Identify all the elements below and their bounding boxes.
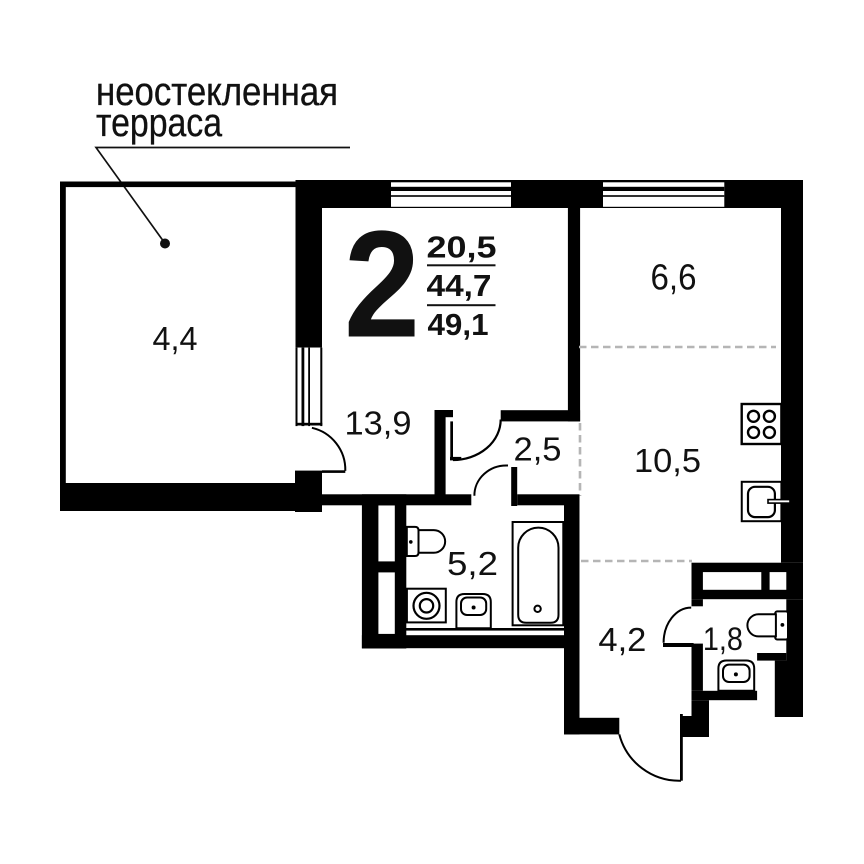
svg-text:1,8: 1,8: [703, 621, 743, 657]
svg-text:терраса: терраса: [96, 101, 223, 145]
svg-text:4,2: 4,2: [598, 621, 646, 658]
svg-text:5,2: 5,2: [447, 546, 498, 583]
svg-text:6,6: 6,6: [651, 257, 697, 298]
svg-text:49,1: 49,1: [428, 307, 489, 342]
svg-text:13,9: 13,9: [345, 405, 412, 442]
svg-text:20,5: 20,5: [427, 230, 497, 265]
svg-text:10,5: 10,5: [634, 443, 701, 480]
svg-text:2: 2: [344, 200, 420, 370]
svg-text:44,7: 44,7: [427, 268, 492, 303]
svg-text:4,4: 4,4: [153, 321, 198, 358]
svg-text:2,5: 2,5: [514, 431, 562, 468]
